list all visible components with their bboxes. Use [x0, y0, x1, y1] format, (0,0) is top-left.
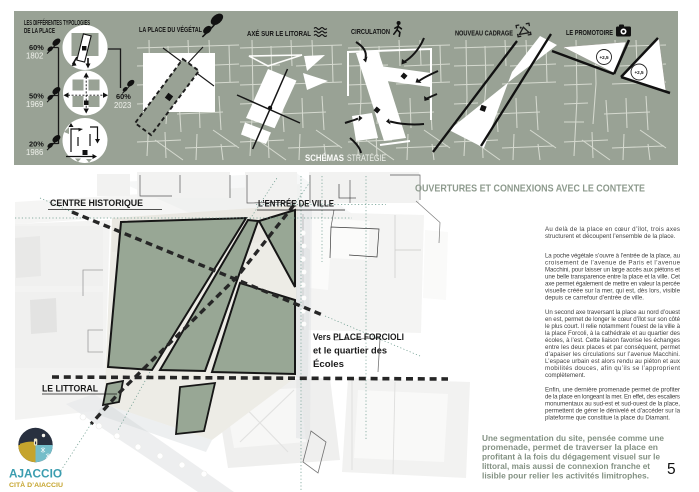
svg-text:STRATÉGIE: STRATÉGIE — [347, 153, 386, 163]
svg-text:monumentaux au sud-est et sud-: monumentaux au sud-est et sud-ouest de l… — [545, 401, 680, 408]
svg-text:écoles, à l’est. Cette liaison: écoles, à l’est. Cette liaison favorise … — [545, 337, 680, 344]
svg-text:2023: 2023 — [114, 101, 131, 110]
svg-text:plateforme que constitue la pl: plateforme que constitue la place du Dia… — [545, 415, 670, 422]
svg-text:1802: 1802 — [26, 52, 43, 61]
svg-text:permettent de gérer le dénivel: permettent de gérer le dénivelé et d’acc… — [545, 408, 681, 415]
svg-text:CENTRE HISTORIQUE: CENTRE HISTORIQUE — [50, 198, 143, 208]
svg-text:en est, permet de longer le cœ: en est, permet de longer le cœur d’îlot … — [545, 316, 681, 323]
svg-text:60%: 60% — [116, 92, 131, 101]
svg-text:La poche végétale s’ouvre à l’: La poche végétale s’ouvre à l’entrée de … — [545, 253, 680, 260]
svg-text:d’apaiser les circulations sur: d’apaiser les circulations sur l’avenue … — [545, 351, 680, 358]
svg-text:Vers PLACE FORCIOLI: Vers PLACE FORCIOLI — [313, 332, 404, 342]
svg-text:entre les deux places et par c: entre les deux places et par conséquent,… — [545, 344, 680, 351]
svg-text:LE LITTORAL: LE LITTORAL — [42, 384, 98, 394]
svg-text:Macchini, pour laisser un larg: Macchini, pour laisser un large accès au… — [545, 267, 680, 274]
svg-text:CIRCULATION: CIRCULATION — [351, 27, 390, 36]
svg-text:+2,5: +2,5 — [599, 55, 609, 60]
svg-text:L’ENTRÉE DE VILLE: L’ENTRÉE DE VILLE — [258, 199, 334, 209]
svg-text:la place Forcoli, à la cathédr: la place Forcoli, à la cathédrale et au … — [545, 330, 680, 337]
svg-text:axe permet également de mettre: axe permet également de mettre en valeur… — [545, 281, 681, 288]
svg-text:OUVERTURES ET CONNEXIONS AVEC: OUVERTURES ET CONNEXIONS AVEC LE CONTEXT… — [415, 184, 645, 195]
svg-text:AJACCIO: AJACCIO — [9, 467, 62, 481]
svg-text:Enfin, une dernière promenade: Enfin, une dernière promenade permet de … — [545, 387, 680, 394]
svg-text:CITÀ D’AIACCIU: CITÀ D’AIACCIU — [9, 480, 63, 489]
svg-text:croisement de l’avenue de Pari: croisement de l’avenue de Paris et l’ave… — [545, 260, 681, 267]
svg-text:LA PLACE DU VÉGÉTAL: LA PLACE DU VÉGÉTAL — [139, 25, 202, 34]
svg-text:L’espace urbain est alors rend: L’espace urbain est alors rendu au piéto… — [545, 358, 680, 365]
svg-text:Un second axe traversant la pl: Un second axe traversant la place au nor… — [545, 309, 680, 316]
svg-text:lisible pour relier les activi: lisible pour relier les activités limitr… — [482, 470, 649, 480]
svg-text:une belle transparence entre l: une belle transparence entre la place et… — [545, 274, 680, 281]
svg-text:et le quartier des: et le quartier des — [313, 346, 387, 356]
svg-text:AXÉ SUR LE LITORAL: AXÉ SUR LE LITORAL — [247, 29, 312, 38]
svg-text:Écoles: Écoles — [313, 359, 344, 369]
svg-text:structurent et découpent l’ens: structurent et découpent l’ensemble de l… — [545, 233, 676, 240]
svg-text:visuelle créée sur la mer, qui: visuelle créée sur la mer, qui est, dès … — [545, 288, 681, 295]
svg-text:complètement.: complètement. — [545, 372, 586, 379]
svg-text:SCHÉMAS: SCHÉMAS — [305, 152, 344, 163]
svg-text:de la place en longeant la mer: de la place en longeant la mer. En effet… — [545, 394, 680, 401]
svg-text:5: 5 — [667, 461, 676, 478]
svg-text:NOUVEAU CADRAGE: NOUVEAU CADRAGE — [455, 29, 513, 38]
svg-text:le plus court. Il relie notamm: le plus court. Il relie notamment l’oues… — [545, 323, 681, 330]
svg-text:depuis ce carrefour d’entrée d: depuis ce carrefour d’entrée de ville. — [545, 295, 644, 302]
svg-text:Au delà de la place en cœur d’: Au delà de la place en cœur d’îlot, troi… — [545, 226, 680, 233]
svg-text:mobilités douces, afin qu’ils: mobilités douces, afin qu’ils se l’appro… — [545, 365, 680, 372]
svg-text:1969: 1969 — [26, 100, 43, 109]
svg-text:1986: 1986 — [26, 148, 43, 157]
svg-text:LE PROMOTOIRE: LE PROMOTOIRE — [566, 28, 613, 37]
svg-text:+2,5: +2,5 — [634, 70, 644, 75]
svg-text:DE LA PLACE: DE LA PLACE — [24, 26, 55, 35]
